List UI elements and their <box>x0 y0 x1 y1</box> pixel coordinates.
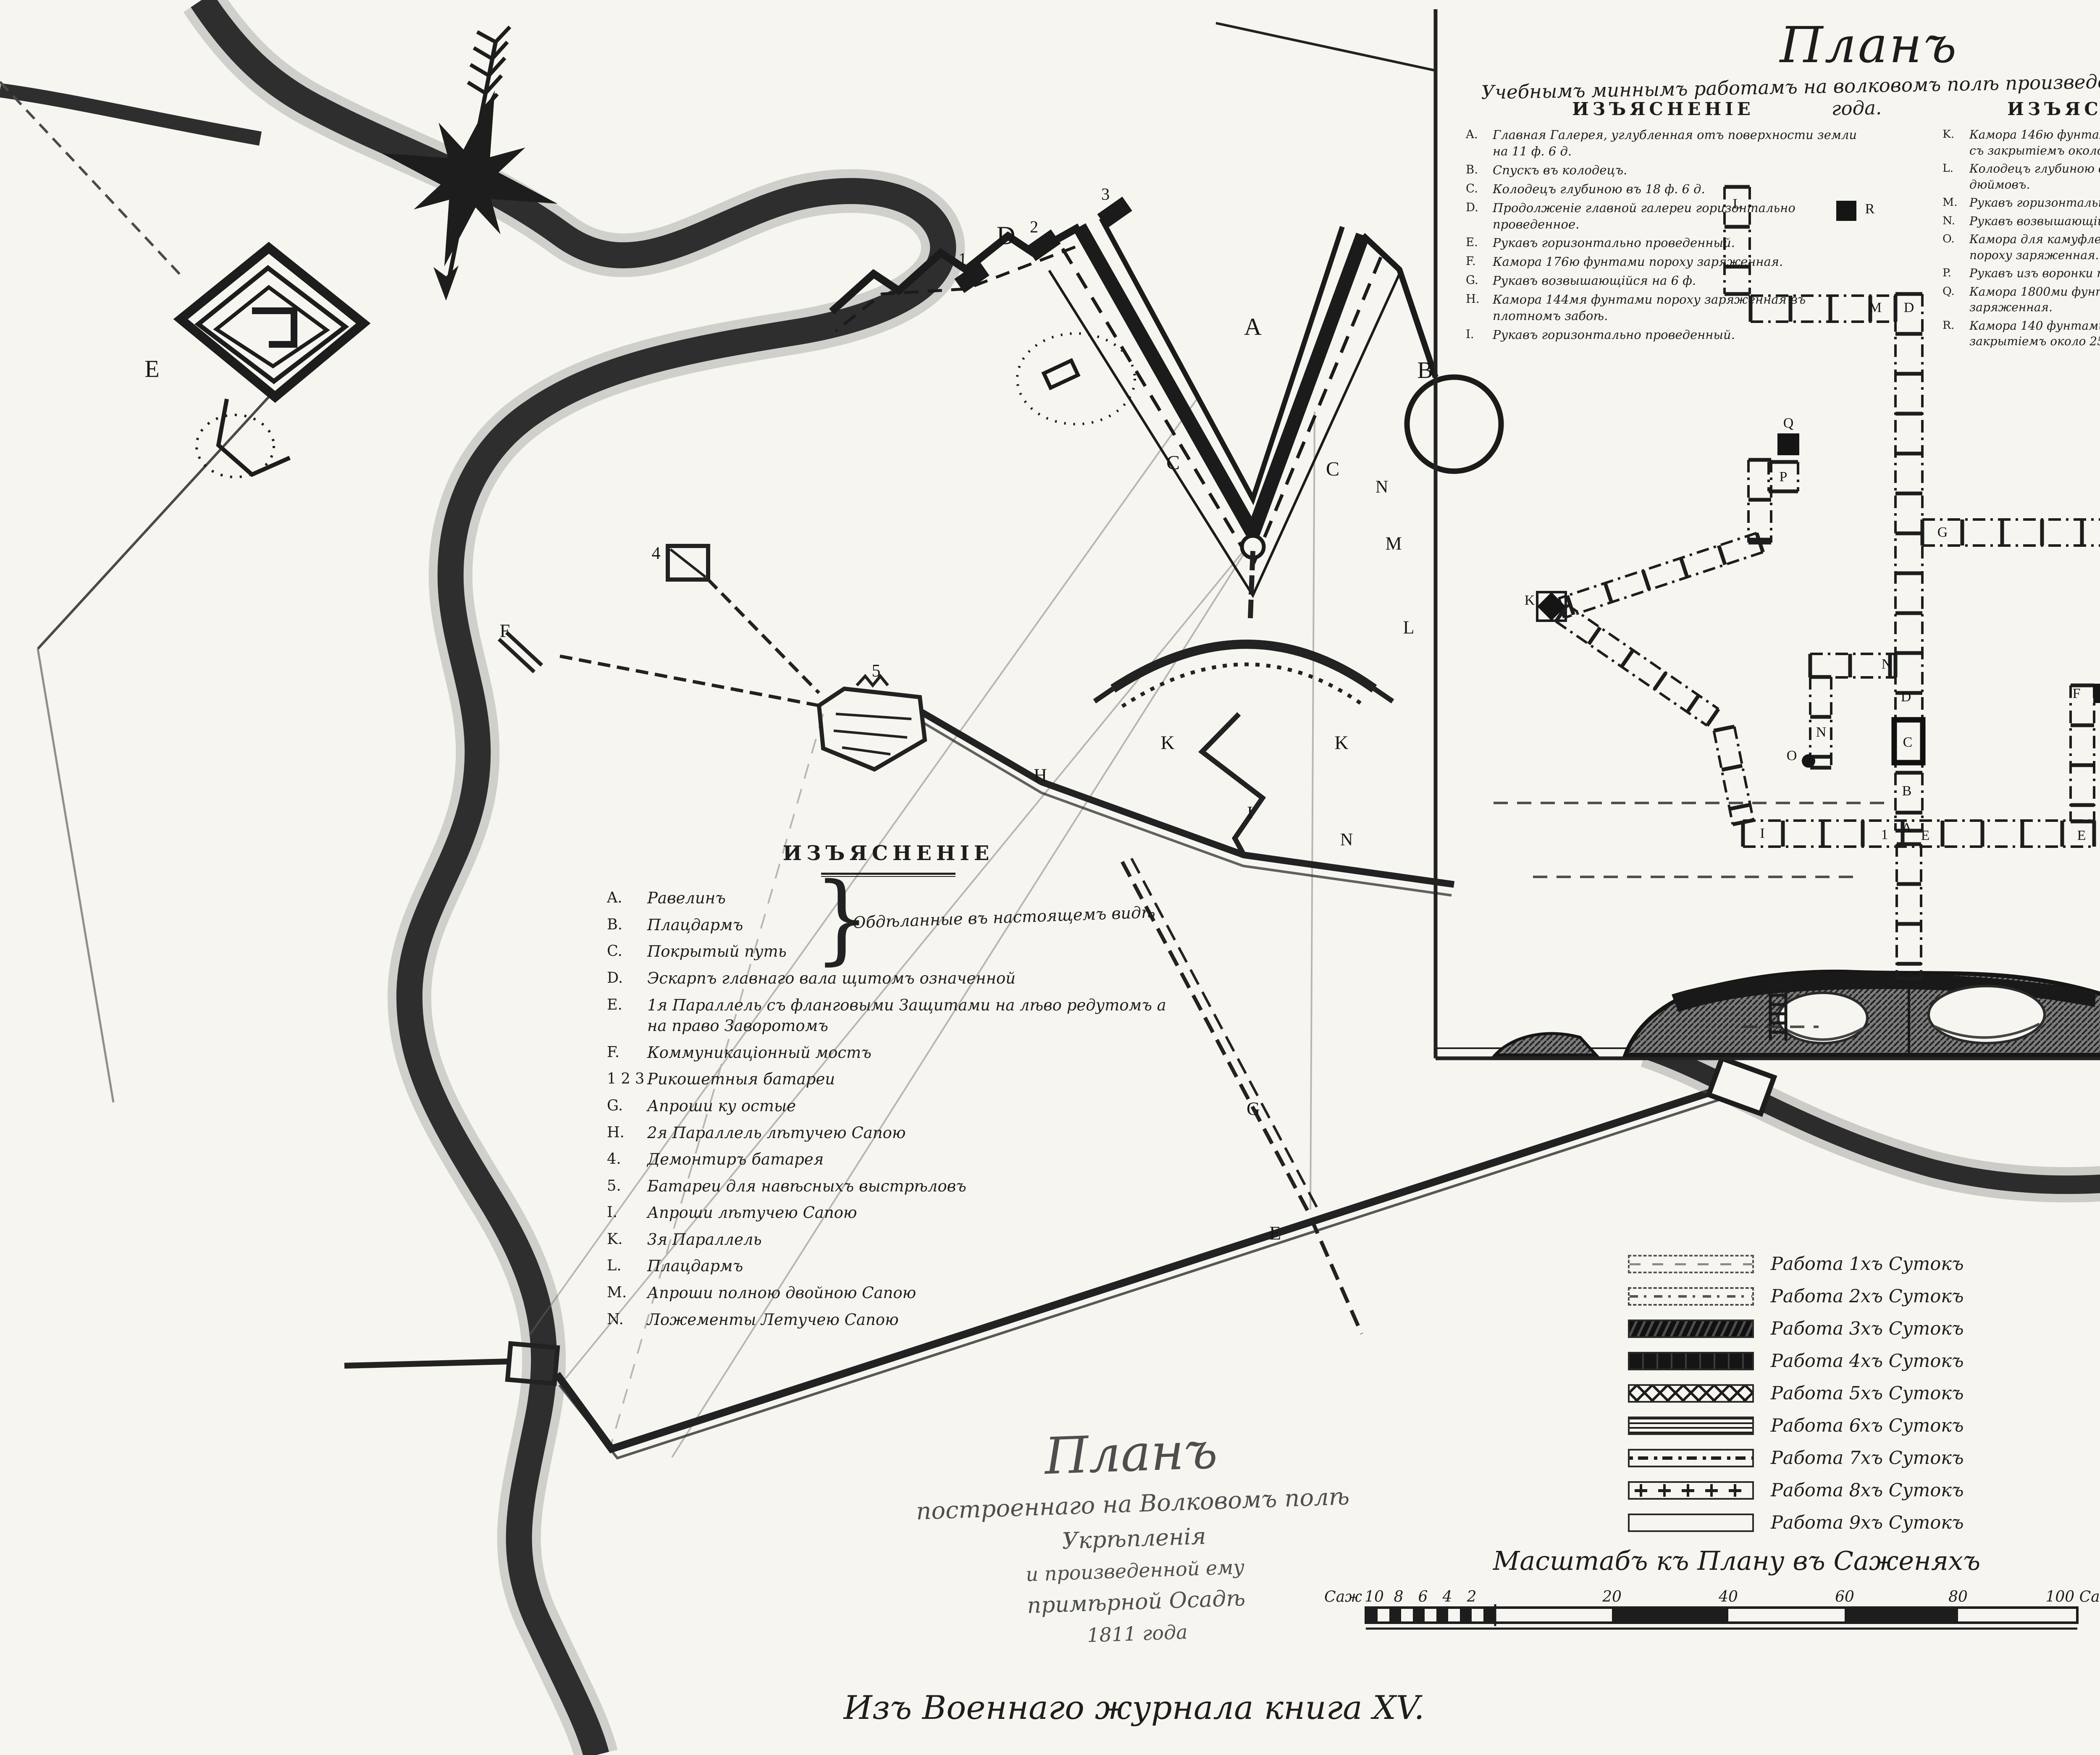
legend-item: R. Камора 140 фунтами пороху заряженная … <box>1942 318 2100 349</box>
work-label: Работа 2хъ Сутокъ <box>1771 1286 1964 1307</box>
map-letter: B <box>1417 357 1433 384</box>
map-letter: D <box>997 221 1016 251</box>
legend-item: N. Ложементы Летучею Сапою <box>607 1309 1170 1330</box>
work-legend-row: Работа 5хъ Сутокъ <box>1628 1383 1964 1404</box>
map-letter: I <box>1247 803 1253 823</box>
work-legend-row: Работа 3хъ Сутокъ <box>1628 1318 1964 1339</box>
legend-item: P. Рукавъ изъ воронки проведенный. <box>1942 265 2100 281</box>
work-legend-row: Работа 1хъ Сутокъ <box>1628 1254 1964 1275</box>
legend-item: L. Колодецъ глубиною въ 13 футовъ 6 дюйм… <box>1942 161 2100 192</box>
work-swatch <box>1628 1287 1754 1306</box>
inset-legend-left: ИЗЪЯСНЕНІЕ A. Главная Галерея, углубленн… <box>1466 97 1861 346</box>
legend-item-key: 4. <box>607 1149 647 1169</box>
legend-item: M. Апроши полною двойною Сапою <box>607 1283 1170 1304</box>
legend-item: A. Главная Галерея, углубленная отъ пове… <box>1466 127 1861 160</box>
legend-item-key: P. <box>1942 265 1969 281</box>
legend-item: G. Рукавъ возвышающійся на 6 ф. <box>1466 273 1861 289</box>
stream-right <box>1646 1050 2100 1185</box>
legend-item-key: H. <box>607 1123 647 1142</box>
legend-item: 5. Батареи для навѣсныхъ выстрѣловъ <box>607 1176 1170 1197</box>
legend-item-key: D. <box>1466 200 1493 215</box>
scale-tick-label: 40 <box>1719 1588 1738 1605</box>
scale-tick-label: 60 <box>1835 1588 1854 1605</box>
inset-letter: D <box>1904 300 1914 316</box>
inset-legend-right-header: ИЗЪЯСНЕНІЕ <box>1942 97 2100 121</box>
inset-letter: A <box>1902 820 1912 836</box>
work-label: Работа 4хъ Сутокъ <box>1771 1351 1964 1372</box>
map-letter: N <box>1375 477 1388 497</box>
bottom-title-lines: Планъ построеннаго на Волковомъ полѣ Укр… <box>870 1416 1398 1654</box>
work-swatch <box>1628 1417 1754 1435</box>
legend-item-key: G. <box>1466 273 1493 288</box>
inset-letter: O <box>1787 748 1797 764</box>
legend-item-text: Равелинъ <box>647 888 726 909</box>
legend-item: K. 3я Параллель <box>607 1229 1170 1250</box>
inset-letter: Q <box>1783 415 1794 431</box>
scanned-map-page: { "page": { "background": "#f6f5f0", "in… <box>0 0 2100 1755</box>
legend-item: C. Колодецъ глубиною въ 18 ф. 6 д. <box>1466 181 1861 197</box>
legend-item-text: Рикошетныя батареи <box>647 1069 835 1090</box>
scale-tick-label: 20 <box>1602 1588 1622 1605</box>
legend-item-key: G. <box>607 1096 647 1115</box>
center-legend-header: ИЗЪЯСНЕНІЕ <box>607 840 1170 867</box>
legend-item-key: E. <box>607 995 647 1015</box>
legend-item: Q. Камора 1800ми фунтами пороху заряженн… <box>1942 284 2100 315</box>
legend-item: C. Покрытый путь <box>607 941 1170 962</box>
inset-letter: F <box>2073 686 2081 702</box>
legend-item: 4. Демонтиръ батарея <box>607 1149 1170 1170</box>
inset-letter: K <box>1525 593 1535 609</box>
inset-letter: E <box>2077 828 2086 844</box>
work-label: Работа 6хъ Сутокъ <box>1771 1415 1964 1436</box>
legend-item: H. Камора 144мя фунтами пороху заряженна… <box>1466 291 1861 324</box>
work-legend-row: Работа 8хъ Сутокъ <box>1628 1480 1964 1501</box>
legend-item: F. Коммуникаціонный мостъ <box>607 1042 1170 1063</box>
legend-item-text: Рукавъ возвышающійся на 3 фута. <box>1969 213 2100 229</box>
work-label: Работа 1хъ Сутокъ <box>1771 1254 1964 1275</box>
legend-item-text: Камора 144мя фунтами пороху заряженная в… <box>1493 291 1861 324</box>
map-letter: E <box>1269 1222 1281 1244</box>
legend-item-text: Камора 140 фунтами пороху заряженная съ … <box>1969 318 2100 349</box>
legend-item: N. Рукавъ возвышающійся на 3 фута. <box>1942 213 2100 229</box>
inset-letter: R <box>1865 201 1875 217</box>
work-legend-row: Работа 2хъ Сутокъ <box>1628 1286 1964 1307</box>
bottom-title-block: Планъ построеннаго на Волковомъ полѣ Укр… <box>870 1416 1398 1662</box>
legend-item-key: I. <box>607 1202 647 1222</box>
legend-item: I. Рукавъ горизонтально проведенный. <box>1466 327 1861 343</box>
legend-item-key: L. <box>607 1256 647 1275</box>
inset-letter: M <box>1869 300 1882 316</box>
legend-item-text: Плацдармъ <box>647 915 743 936</box>
map-letter: 2 <box>1030 217 1038 237</box>
inset-legend-right: ИЗЪЯСНЕНІЕ K. Камора 146ю фунтами пороху… <box>1942 97 2100 352</box>
work-days-legend: Работа 1хъ Сутокъ Работа 2хъ Сутокъ Рабо… <box>1628 1254 1964 1545</box>
inset-legend-right-items: K. Камора 146ю фунтами пороху заряженная… <box>1942 127 2100 349</box>
work-label: Работа 3хъ Сутокъ <box>1771 1318 1964 1339</box>
legend-item-key: H. <box>1466 291 1493 307</box>
inset-legend-left-items: A. Главная Галерея, углубленная отъ пове… <box>1466 127 1861 343</box>
work-swatch <box>1628 1449 1754 1467</box>
legend-item-key: C. <box>607 941 647 961</box>
work-label: Работа 7хъ Сутокъ <box>1771 1448 1964 1469</box>
legend-item-key: L. <box>1942 161 1969 176</box>
scale-tick-label: 80 <box>1948 1588 1968 1605</box>
legend-item-key: E. <box>1466 235 1493 250</box>
work-swatch <box>1628 1255 1754 1273</box>
map-letter: 4 <box>652 543 661 564</box>
legend-item: K. Камора 146ю фунтами пороху заряженная… <box>1942 127 2100 158</box>
legend-item: D. Эскарпъ главнаго вала щитомъ означенн… <box>607 968 1170 989</box>
scale-tick-label: 100 Саженъ <box>2045 1588 2100 1605</box>
legend-item: M. Рукавъ горизонтально проведенный. <box>1942 195 2100 211</box>
work-legend-row: Работа 4хъ Сутокъ <box>1628 1351 1964 1372</box>
map-letter: G <box>1247 1098 1260 1120</box>
scale-tick-label: 6 <box>1418 1588 1428 1605</box>
work-label: Работа 5хъ Сутокъ <box>1771 1383 1964 1404</box>
needle-arrowhead <box>433 265 459 301</box>
work-legend-row: Работа 6хъ Сутокъ <box>1628 1415 1964 1436</box>
legend-item-key: C. <box>1466 181 1493 197</box>
legend-item-text: Рукавъ горизонтально проведенный. <box>1969 195 2100 211</box>
map-letter: A <box>1244 313 1262 341</box>
legend-item-text: Рукавъ возвышающійся на 6 ф. <box>1493 273 1696 289</box>
inset-letter: I <box>1760 826 1764 842</box>
legend-item-text: Рукавъ горизонтально проведенный. <box>1493 327 1735 343</box>
scale-title: Масштабъ къ Плану въ Саженяхъ <box>1436 1545 2037 1576</box>
map-letter: L <box>1403 617 1415 638</box>
inset-terrain <box>1495 950 2100 1055</box>
legend-item: I. Апроши лѣтучею Сапою <box>607 1202 1170 1223</box>
legend-item-key: A. <box>1466 127 1493 142</box>
scale-bar <box>1366 1604 2077 1629</box>
source-caption: Изъ Военнаго журнала книга XV. <box>790 1689 1478 1727</box>
legend-item-text: Демонтиръ батарея <box>647 1149 824 1170</box>
inset-letter: N <box>1882 656 1892 672</box>
work-legend-row: Работа 9хъ Сутокъ <box>1628 1512 1964 1533</box>
legend-item: L. Плацдармъ <box>607 1256 1170 1277</box>
legend-item-key: 5. <box>607 1176 647 1196</box>
legend-item-text: Камора 146ю фунтами пороху заряженная съ… <box>1969 127 2100 158</box>
legend-item-key: K. <box>1942 127 1969 142</box>
work-label: Работа 8хъ Сутокъ <box>1771 1480 1964 1501</box>
inset-letter: G <box>1937 525 1948 540</box>
inset-legend-left-header: ИЗЪЯСНЕНІЕ <box>1466 97 1861 121</box>
legend-item: F. Камора 176ю фунтами пороху заряженная… <box>1466 254 1861 270</box>
map-letter: C <box>1326 458 1339 481</box>
legend-item: D. Продолженіе главной галереи горизонта… <box>1466 200 1861 233</box>
work-legend-row: Работа 7хъ Сутокъ <box>1628 1448 1964 1469</box>
legend-item-text: Камора 176ю фунтами пороху заряженная. <box>1493 254 1783 270</box>
legend-item-text: Плацдармъ <box>647 1256 743 1277</box>
map-letter: 1 <box>958 249 967 269</box>
legend-item-key: Q. <box>1942 284 1969 299</box>
map-letter: K <box>1334 732 1348 754</box>
legend-item-key: B. <box>1466 162 1493 178</box>
work-swatch <box>1628 1481 1754 1500</box>
inset-letter: E <box>1921 828 1930 844</box>
legend-item-key: M. <box>1942 195 1969 210</box>
work-swatch <box>1628 1384 1754 1403</box>
legend-item: E. Рукавъ горизонтально проведенный. <box>1466 235 1861 251</box>
scale-tick-label: 2 <box>1467 1588 1477 1605</box>
legend-item-key: N. <box>607 1309 647 1329</box>
legend-item: E. 1я Параллель съ фланговыми Защитами н… <box>607 995 1170 1036</box>
map-letter: H <box>1034 765 1047 786</box>
legend-item-text: Коммуникаціонный мостъ <box>647 1042 871 1063</box>
legend-item-text: Рукавъ горизонтально проведенный. <box>1493 235 1735 251</box>
legend-item: G. Апроши ку остые <box>607 1096 1170 1117</box>
legend-item-text: Батареи для навѣсныхъ выстрѣловъ <box>647 1176 966 1197</box>
legend-item-key: I. <box>1466 327 1493 342</box>
legend-item-key: K. <box>607 1229 647 1249</box>
map-letter: F <box>500 620 510 642</box>
legend-item: 1 2 3 Рикошетныя батареи <box>607 1069 1170 1090</box>
map-letter: 5 <box>872 661 881 681</box>
legend-item-text: 2я Параллель лѣтучею Сапою <box>647 1123 906 1144</box>
star-fort <box>181 248 363 477</box>
map-letter: M <box>1385 533 1402 554</box>
center-legend-items: A. Равелинъ B. Плацдармъ C. Покрытый пут… <box>607 888 1170 1330</box>
legend-item-text: Покрытый путь <box>647 941 787 962</box>
legend-item-text: Спускъ въ колодецъ. <box>1493 162 1627 178</box>
legend-item-text: Камора для камуфлета 20ю фунтами пороху … <box>1969 231 2100 263</box>
map-letter: N <box>1340 830 1353 850</box>
legend-item-text: Апроши ку остые <box>647 1096 796 1117</box>
inset-letter: D <box>1901 689 1911 705</box>
legend-item-key: 1 2 3 <box>607 1069 647 1089</box>
map-letter: C <box>1166 451 1180 475</box>
legend-item-text: Ложементы Летучею Сапою <box>647 1309 899 1330</box>
legend-item: O. Камора для камуфлета 20ю фунтами поро… <box>1942 231 2100 263</box>
legend-item-text: Продолженіе главной галереи горизонтальн… <box>1493 200 1861 233</box>
legend-item-text: Колодецъ глубиною въ 18 ф. 6 д. <box>1493 181 1705 197</box>
work-swatch <box>1628 1320 1754 1338</box>
work-label: Работа 9хъ Сутокъ <box>1771 1512 1964 1533</box>
legend-item-key: F. <box>1466 254 1493 269</box>
legend-item-key: A. <box>607 888 647 908</box>
inset-letter: C <box>1903 735 1913 750</box>
legend-item-text: Апроши полною двойною Сапою <box>647 1283 916 1304</box>
work-swatch <box>1628 1352 1754 1370</box>
inset-letter: N <box>1816 724 1827 740</box>
map-letter: E <box>144 355 159 383</box>
legend-item-key: M. <box>607 1283 647 1302</box>
legend-item: B. Спускъ въ колодецъ. <box>1466 162 1861 178</box>
legend-item-text: 1я Параллель съ фланговыми Защитами на л… <box>647 995 1170 1036</box>
legend-item: H. 2я Параллель лѣтучею Сапою <box>607 1123 1170 1144</box>
legend-item-text: Главная Галерея, углубленная отъ поверхн… <box>1493 127 1861 160</box>
legend-item-text: Колодецъ глубиною въ 13 футовъ 6 дюймовъ… <box>1969 161 2100 192</box>
legend-item-text: Рукавъ изъ воронки проведенный. <box>1969 265 2100 281</box>
work-legend-rows: Работа 1хъ Сутокъ Работа 2хъ Сутокъ Рабо… <box>1628 1254 1964 1533</box>
inset-title: Планъ <box>1617 16 2100 74</box>
work-swatch <box>1628 1514 1754 1532</box>
inset-letter: L <box>1733 196 1742 212</box>
map-letter: 3 <box>1101 184 1110 204</box>
inset-letter: B <box>1902 783 1912 799</box>
legend-item-key: R. <box>1942 318 1969 333</box>
legend-item-key: O. <box>1942 231 1969 247</box>
legend-item-key: D. <box>607 968 647 988</box>
legend-item-text: 3я Параллель <box>647 1229 762 1250</box>
legend-item-key: F. <box>607 1042 647 1062</box>
legend-item-text: Камора 1800ми фунтами пороху заряженная. <box>1969 284 2100 315</box>
inset-letter: P <box>1780 469 1788 485</box>
legend-item-key: B. <box>607 915 647 934</box>
inset-letter: 1 <box>1881 827 1888 843</box>
scale-tick-label: 4 <box>1443 1588 1452 1605</box>
legend-item-text: Апроши лѣтучею Сапою <box>647 1202 857 1223</box>
legend-item-key: N. <box>1942 213 1969 228</box>
map-letter: K <box>1160 732 1174 754</box>
roads <box>0 82 269 1102</box>
